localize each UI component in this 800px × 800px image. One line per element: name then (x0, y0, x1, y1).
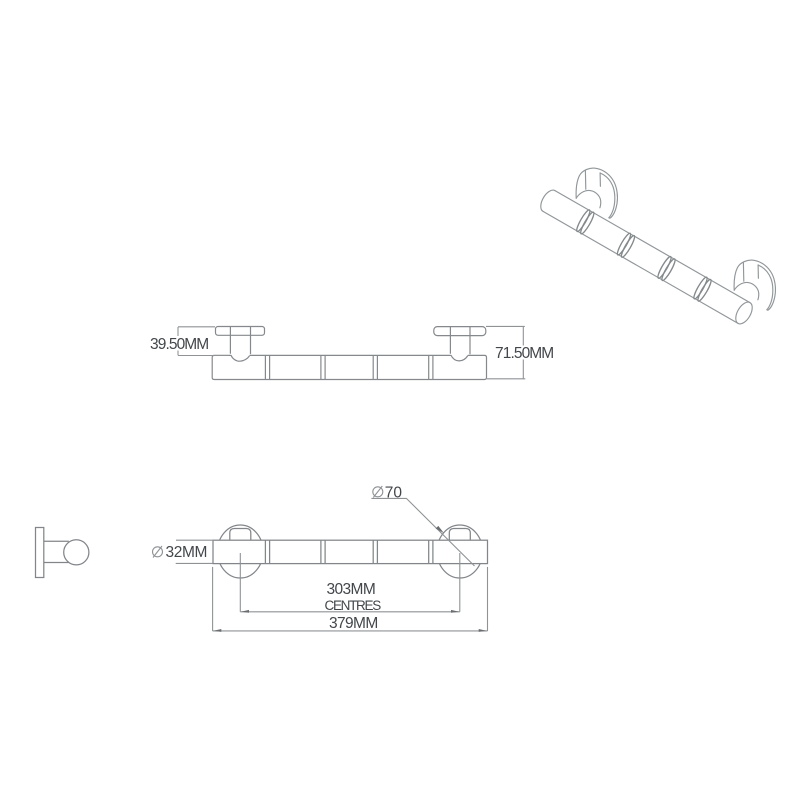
svg-text:303MM: 303MM (327, 581, 376, 598)
svg-text:CENTRES: CENTRES (325, 598, 382, 613)
svg-text:39.50MM: 39.50MM (150, 336, 208, 353)
svg-text:379MM: 379MM (329, 615, 378, 632)
svg-text:70: 70 (385, 484, 403, 501)
svg-text:32MM: 32MM (166, 544, 207, 561)
svg-text:71.50MM: 71.50MM (495, 345, 553, 362)
